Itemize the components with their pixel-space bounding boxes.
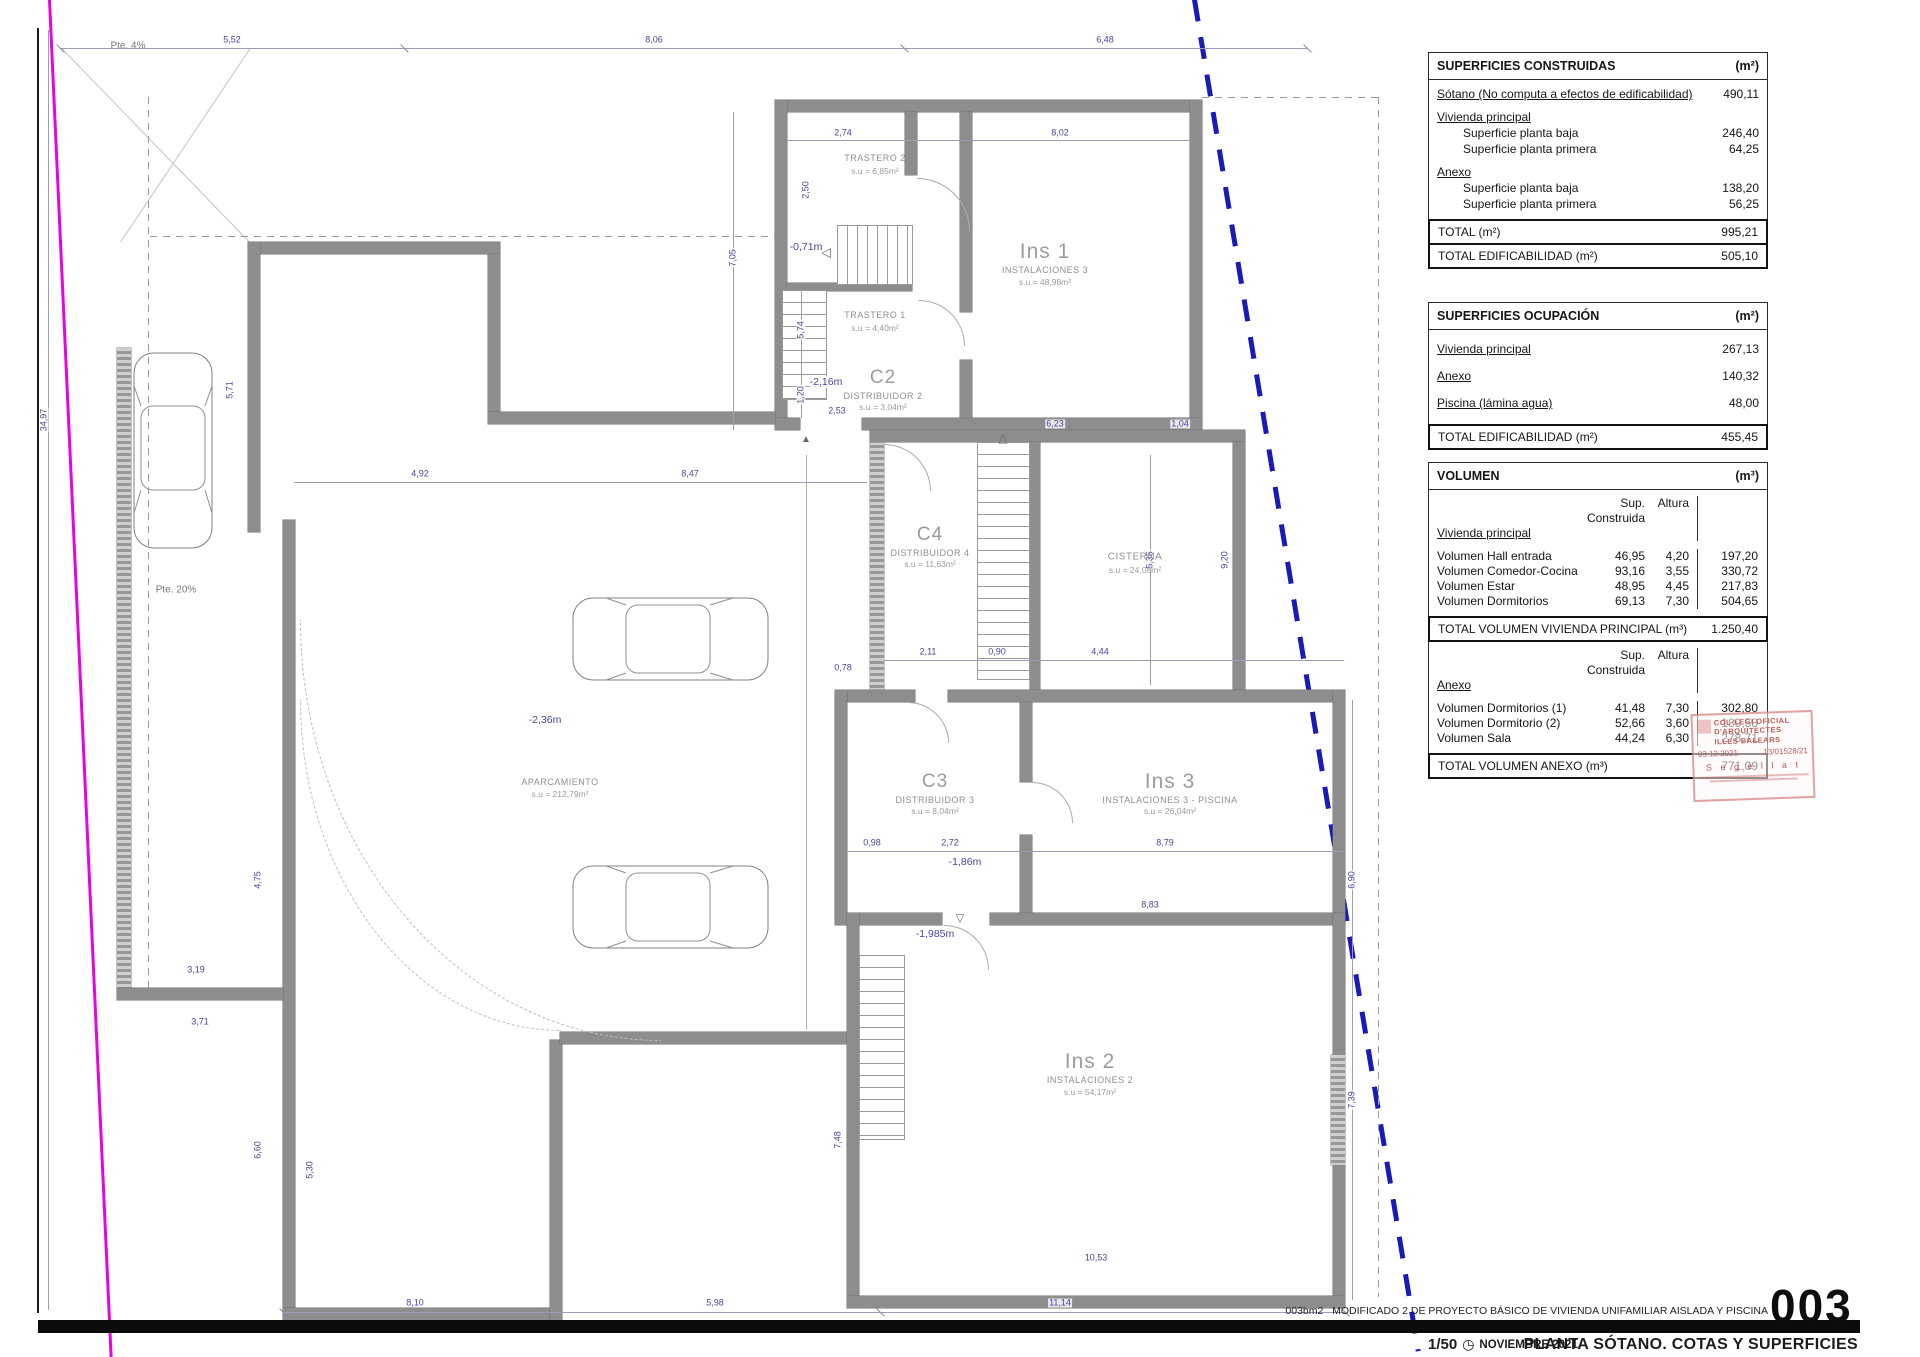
row-total: 504,65: [1697, 594, 1759, 609]
stair-direction-arrow-icon: △: [998, 432, 1007, 444]
dimension-label: 1,04: [1170, 420, 1190, 429]
total-value: 1.250,40: [1711, 622, 1758, 636]
dimension-label: 10,53: [1084, 1254, 1109, 1263]
total-label: TOTAL EDIFICABILIDAD (m²): [1438, 430, 1598, 444]
group-label: Anexo: [1437, 678, 1583, 693]
row-altura: 4,20: [1645, 549, 1689, 564]
dimension-label: 8,83: [1140, 901, 1160, 910]
wall: [1020, 835, 1032, 925]
dimension-label: 4,75: [254, 870, 263, 890]
elevation-label: -2,16m: [810, 376, 843, 388]
site-boundary-line: [37, 28, 39, 1313]
dimension-label: 8,79: [1155, 839, 1175, 848]
row-value: 138,20: [1722, 180, 1759, 196]
wall: [283, 520, 295, 1320]
wall: [550, 1040, 562, 1320]
row-value: 64,25: [1729, 141, 1759, 157]
stamp-fineprint: [1710, 778, 1798, 783]
room-area: s.u = 48,98m²: [1019, 277, 1071, 287]
row-label: Volumen Dormitorio (2): [1437, 716, 1583, 731]
total-label: TOTAL EDIFICABILIDAD (m²): [1438, 249, 1598, 263]
row-value: 267,13: [1722, 342, 1759, 356]
row-label: Superficie planta primera: [1437, 196, 1596, 212]
col-header: Sup. Construida: [1583, 648, 1645, 678]
wall: [1233, 442, 1245, 690]
setback-dashed-line: [150, 236, 775, 237]
row-total: 197,20: [1697, 549, 1759, 564]
room-code: C2: [870, 367, 896, 389]
drawing-sheet: Pte. 4% Pte. 20% ◁ △ ▲ ▽: [0, 0, 1920, 1357]
dimension-label: 2,72: [940, 839, 960, 848]
dimension-label: 6,48: [1095, 36, 1115, 45]
wall: [835, 690, 847, 925]
row-label: Vivienda principal: [1437, 342, 1531, 356]
row-label: Volumen Dormitorios (1): [1437, 701, 1583, 716]
stairs: [977, 442, 1030, 680]
room-name: DISTRIBUIDOR 4: [890, 548, 969, 558]
college-seal-stamp: COL·LEGI OFICIAL D'ARQUITECTES ILLES BAL…: [1691, 710, 1816, 802]
wall: [905, 112, 917, 175]
dimension-label: 5,30: [306, 1160, 315, 1180]
dimension-label: 9,20: [1221, 550, 1230, 570]
dimension-label: 2,53: [827, 407, 847, 416]
room-name: TRASTERO 2: [844, 153, 906, 163]
room-area: s.u = 4,40m²: [851, 323, 898, 333]
room-name: TRASTERO 1: [844, 310, 906, 320]
wall: [1333, 690, 1345, 925]
row-label: Volumen Hall entrada: [1437, 549, 1583, 564]
wall: [775, 418, 800, 430]
parcel-boundary-dashed-line: [1192, 0, 1421, 1352]
sheet-title: PLANTA SÓTANO. COTAS Y SUPERFICIES: [1300, 1336, 1858, 1354]
dimension-label: 5,52: [222, 36, 242, 45]
row-altura: 7,30: [1645, 594, 1689, 609]
door-swing-arc: [908, 702, 949, 743]
row-sup: 46,95: [1583, 549, 1645, 564]
row-value: 48,00: [1729, 396, 1759, 410]
row-label: Anexo: [1437, 369, 1471, 383]
room-area: s.u = 6,85m²: [851, 166, 898, 176]
dimension-label: 8,10: [405, 1299, 425, 1308]
row-sup: 48,95: [1583, 579, 1645, 594]
stamp-logo-icon: [1697, 719, 1711, 733]
room-code: Ins 2: [1065, 1050, 1116, 1074]
car-icon: [128, 348, 218, 553]
dimension-label: 6,90: [1348, 870, 1357, 890]
dimension-label: 6,60: [254, 1140, 263, 1160]
wall: [948, 690, 1345, 702]
wall: [960, 360, 972, 418]
wall: [847, 913, 942, 925]
room-area: s.u = 26,04m²: [1144, 806, 1196, 816]
stairs: [837, 225, 913, 285]
col-header: Sup. Construida: [1583, 496, 1645, 526]
group-label: Vivienda principal: [1437, 109, 1759, 125]
dimension-line: [787, 140, 1190, 141]
row-value: 490,11: [1723, 86, 1759, 102]
door-swing-arc: [919, 300, 965, 346]
group-label: Vivienda principal: [1437, 526, 1583, 541]
dimension-label: 34,97: [40, 408, 49, 433]
row-value: 246,40: [1722, 125, 1759, 141]
wall: [862, 418, 1202, 430]
total-value: 995,21: [1721, 225, 1758, 239]
room-name: DISTRIBUIDOR 2: [843, 391, 922, 401]
dimension-label: 6,23: [1045, 420, 1065, 429]
table-superficies-ocupacion: SUPERFICIES OCUPACIÓN (m²) Vivienda prin…: [1428, 302, 1768, 450]
row-sup: 52,66: [1583, 716, 1645, 731]
project-name: MODIFICADO 2 DE PROYECTO BÁSICO DE VIVIE…: [1332, 1305, 1768, 1317]
wall: [835, 690, 915, 702]
row-altura: 6,30: [1645, 731, 1689, 746]
dimension-label: 5,98: [705, 1299, 725, 1308]
car-icon: [568, 592, 773, 687]
dimension-label: 0,78: [833, 664, 853, 673]
dimension-label: 7,48: [834, 1130, 843, 1150]
door-direction-arrow-icon: ▽: [956, 914, 964, 925]
dimension-label: 5,71: [226, 380, 235, 400]
wall: [990, 913, 1345, 925]
row-label: Sótano (No computa a efectos de edificab…: [1437, 86, 1693, 102]
col-header: Altura: [1645, 648, 1689, 678]
elevation-label: -1,985m: [916, 928, 955, 940]
row-sup: 93,16: [1583, 564, 1645, 579]
dimension-label: 7,05: [729, 248, 738, 268]
dimension-line: [847, 851, 1345, 852]
dimension-label: 8,02: [1050, 129, 1070, 138]
dimension-label: 8,06: [644, 36, 664, 45]
wall: [250, 242, 500, 254]
room-area: s.u = 24,08m²: [1109, 565, 1161, 575]
room-name: INSTALACIONES 3 - PISCINA: [1102, 795, 1237, 805]
room-area: s.u = 212,79m²: [532, 789, 589, 799]
room-code: C3: [922, 771, 948, 793]
dimension-line: [48, 30, 49, 1310]
project-title-line: 003bm2 MODIFICADO 2 DE PROYECTO BÁSICO D…: [1160, 1305, 1768, 1317]
dimension-line: [1352, 700, 1353, 1300]
elevation-label: -2,36m: [529, 714, 562, 726]
wall: [488, 412, 775, 424]
stamp-seal-word: S e g e l l a t: [1698, 759, 1808, 774]
stamp-line: ILLES BALEARS: [1714, 734, 1790, 746]
total-label: TOTAL VOLUMEN ANEXO (m³): [1438, 759, 1608, 773]
turning-radius-arc: [300, 700, 561, 1031]
dimension-label: 2,50: [802, 180, 811, 200]
col-header: Altura: [1645, 496, 1689, 526]
sheet-number: 003: [1770, 1283, 1862, 1329]
table-title: VOLUMEN: [1437, 469, 1500, 483]
car-icon: [568, 860, 773, 955]
room-code: C4: [917, 524, 943, 546]
wall: [1190, 100, 1202, 430]
row-label: Volumen Comedor-Cocina: [1437, 564, 1583, 579]
row-sup: 69,13: [1583, 594, 1645, 609]
row-value: 140,32: [1722, 369, 1759, 383]
door-swing-arc: [1032, 782, 1073, 823]
room-code: Ins 1: [1020, 240, 1071, 264]
row-altura: 3,55: [1645, 564, 1689, 579]
room-code: Ins 3: [1145, 770, 1196, 794]
dimension-label: 11,14: [1048, 1299, 1072, 1308]
row-label: Piscina (lámina agua): [1437, 396, 1552, 410]
dimension-label: 2,11: [919, 648, 938, 657]
row-sup: 44,24: [1583, 731, 1645, 746]
dimension-label: 5,74: [797, 320, 806, 340]
door-direction-arrow-icon: ▲: [801, 435, 811, 445]
dimension-line: [733, 112, 734, 430]
titleblock-bar: [38, 1320, 1860, 1333]
row-label: Volumen Sala: [1437, 731, 1583, 746]
group-label: Anexo: [1437, 164, 1759, 180]
total-label: TOTAL VOLUMEN VIVIENDA PRINCIPAL (m³): [1438, 622, 1687, 636]
slope-label: Pte. 4%: [110, 41, 145, 52]
table-title: SUPERFICIES OCUPACIÓN: [1437, 309, 1599, 323]
wall: [1020, 702, 1032, 782]
row-label: Superficie planta baja: [1437, 125, 1578, 141]
room-name: APARCAMIENTO: [521, 777, 598, 787]
wall: [870, 430, 1245, 442]
dimension-label: 7,39: [1348, 1090, 1357, 1110]
table-title: SUPERFICIES CONSTRUIDAS: [1437, 59, 1616, 73]
sight-line: [61, 48, 250, 243]
row-label: Superficie planta baja: [1437, 180, 1578, 196]
wall: [283, 1308, 562, 1320]
row-altura: 3,60: [1645, 716, 1689, 731]
row-altura: 7,30: [1645, 701, 1689, 716]
row-altura: 4,45: [1645, 579, 1689, 594]
elevation-label: -1,86m: [949, 856, 982, 868]
row-label: Superficie planta primera: [1437, 141, 1596, 157]
room-area: s.u = 11,63m²: [904, 559, 956, 569]
total-value: 455,45: [1721, 430, 1758, 444]
dimension-label: 0,90: [987, 648, 1007, 657]
dimension-label: 1,20: [797, 385, 806, 405]
slope-label: Pte. 20%: [156, 585, 197, 596]
dimension-label: 4,92: [410, 470, 430, 479]
total-label: TOTAL (m²): [1438, 225, 1500, 239]
row-label: Volumen Dormitorios: [1437, 594, 1583, 609]
dimension-line: [60, 48, 1307, 49]
row-total: 330,72: [1697, 564, 1759, 579]
room-name: CISTERNA: [1108, 552, 1163, 563]
wall: [847, 913, 859, 1308]
row-value: 56,25: [1729, 196, 1759, 212]
circulation-guide-line: [806, 455, 807, 1030]
table-superficies-construidas: SUPERFICIES CONSTRUIDAS (m²) Sótano (No …: [1428, 52, 1768, 269]
table-unit: (m³): [1735, 469, 1759, 483]
room-area: s.u = 54,17m²: [1064, 1087, 1116, 1097]
wall: [488, 254, 500, 424]
row-total: 217,83: [1697, 579, 1759, 594]
room-area: s.u = 3,04m²: [859, 402, 906, 412]
retaining-wall-hatched: [870, 430, 884, 690]
survey-magenta-line: [48, 0, 113, 1357]
room-area: s.u = 8,04m²: [911, 806, 958, 816]
room-name: DISTRIBUIDOR 3: [895, 795, 974, 805]
room-name: INSTALACIONES 2: [1047, 1075, 1133, 1085]
setback-dashed-line: [1378, 97, 1379, 1297]
dimension-line: [294, 482, 867, 483]
stamp-date: 03.12.2021: [1698, 749, 1738, 760]
row-sup: 41,48: [1583, 701, 1645, 716]
dimension-label: 0,98: [862, 839, 882, 848]
stamp-number: 13/01528/21: [1763, 746, 1808, 758]
wall: [775, 100, 1202, 112]
project-code: 003bm2: [1285, 1305, 1323, 1317]
dimension-line: [884, 660, 1344, 661]
wall: [117, 988, 283, 1000]
dimension-label: 4,44: [1090, 648, 1110, 657]
door-swing-arc: [884, 444, 931, 491]
setback-dashed-line: [1202, 97, 1378, 98]
stairs: [859, 955, 905, 1140]
dimension-label: 3,71: [190, 1018, 210, 1027]
dimension-label: 2,74: [833, 129, 853, 138]
table-unit: (m²): [1735, 309, 1759, 323]
dimension-label: 8,47: [680, 470, 700, 479]
sight-line: [120, 48, 250, 242]
room-name: INSTALACIONES 3: [1002, 265, 1088, 275]
row-label: Volumen Estar: [1437, 579, 1583, 594]
dimension-label: 3,19: [186, 966, 206, 975]
wall: [1030, 442, 1040, 690]
elevation-label: -0,71m: [790, 241, 823, 253]
wall: [248, 242, 260, 532]
table-unit: (m²): [1735, 59, 1759, 73]
total-value: 505,10: [1721, 249, 1758, 263]
retaining-wall-hatched: [1331, 1055, 1345, 1165]
